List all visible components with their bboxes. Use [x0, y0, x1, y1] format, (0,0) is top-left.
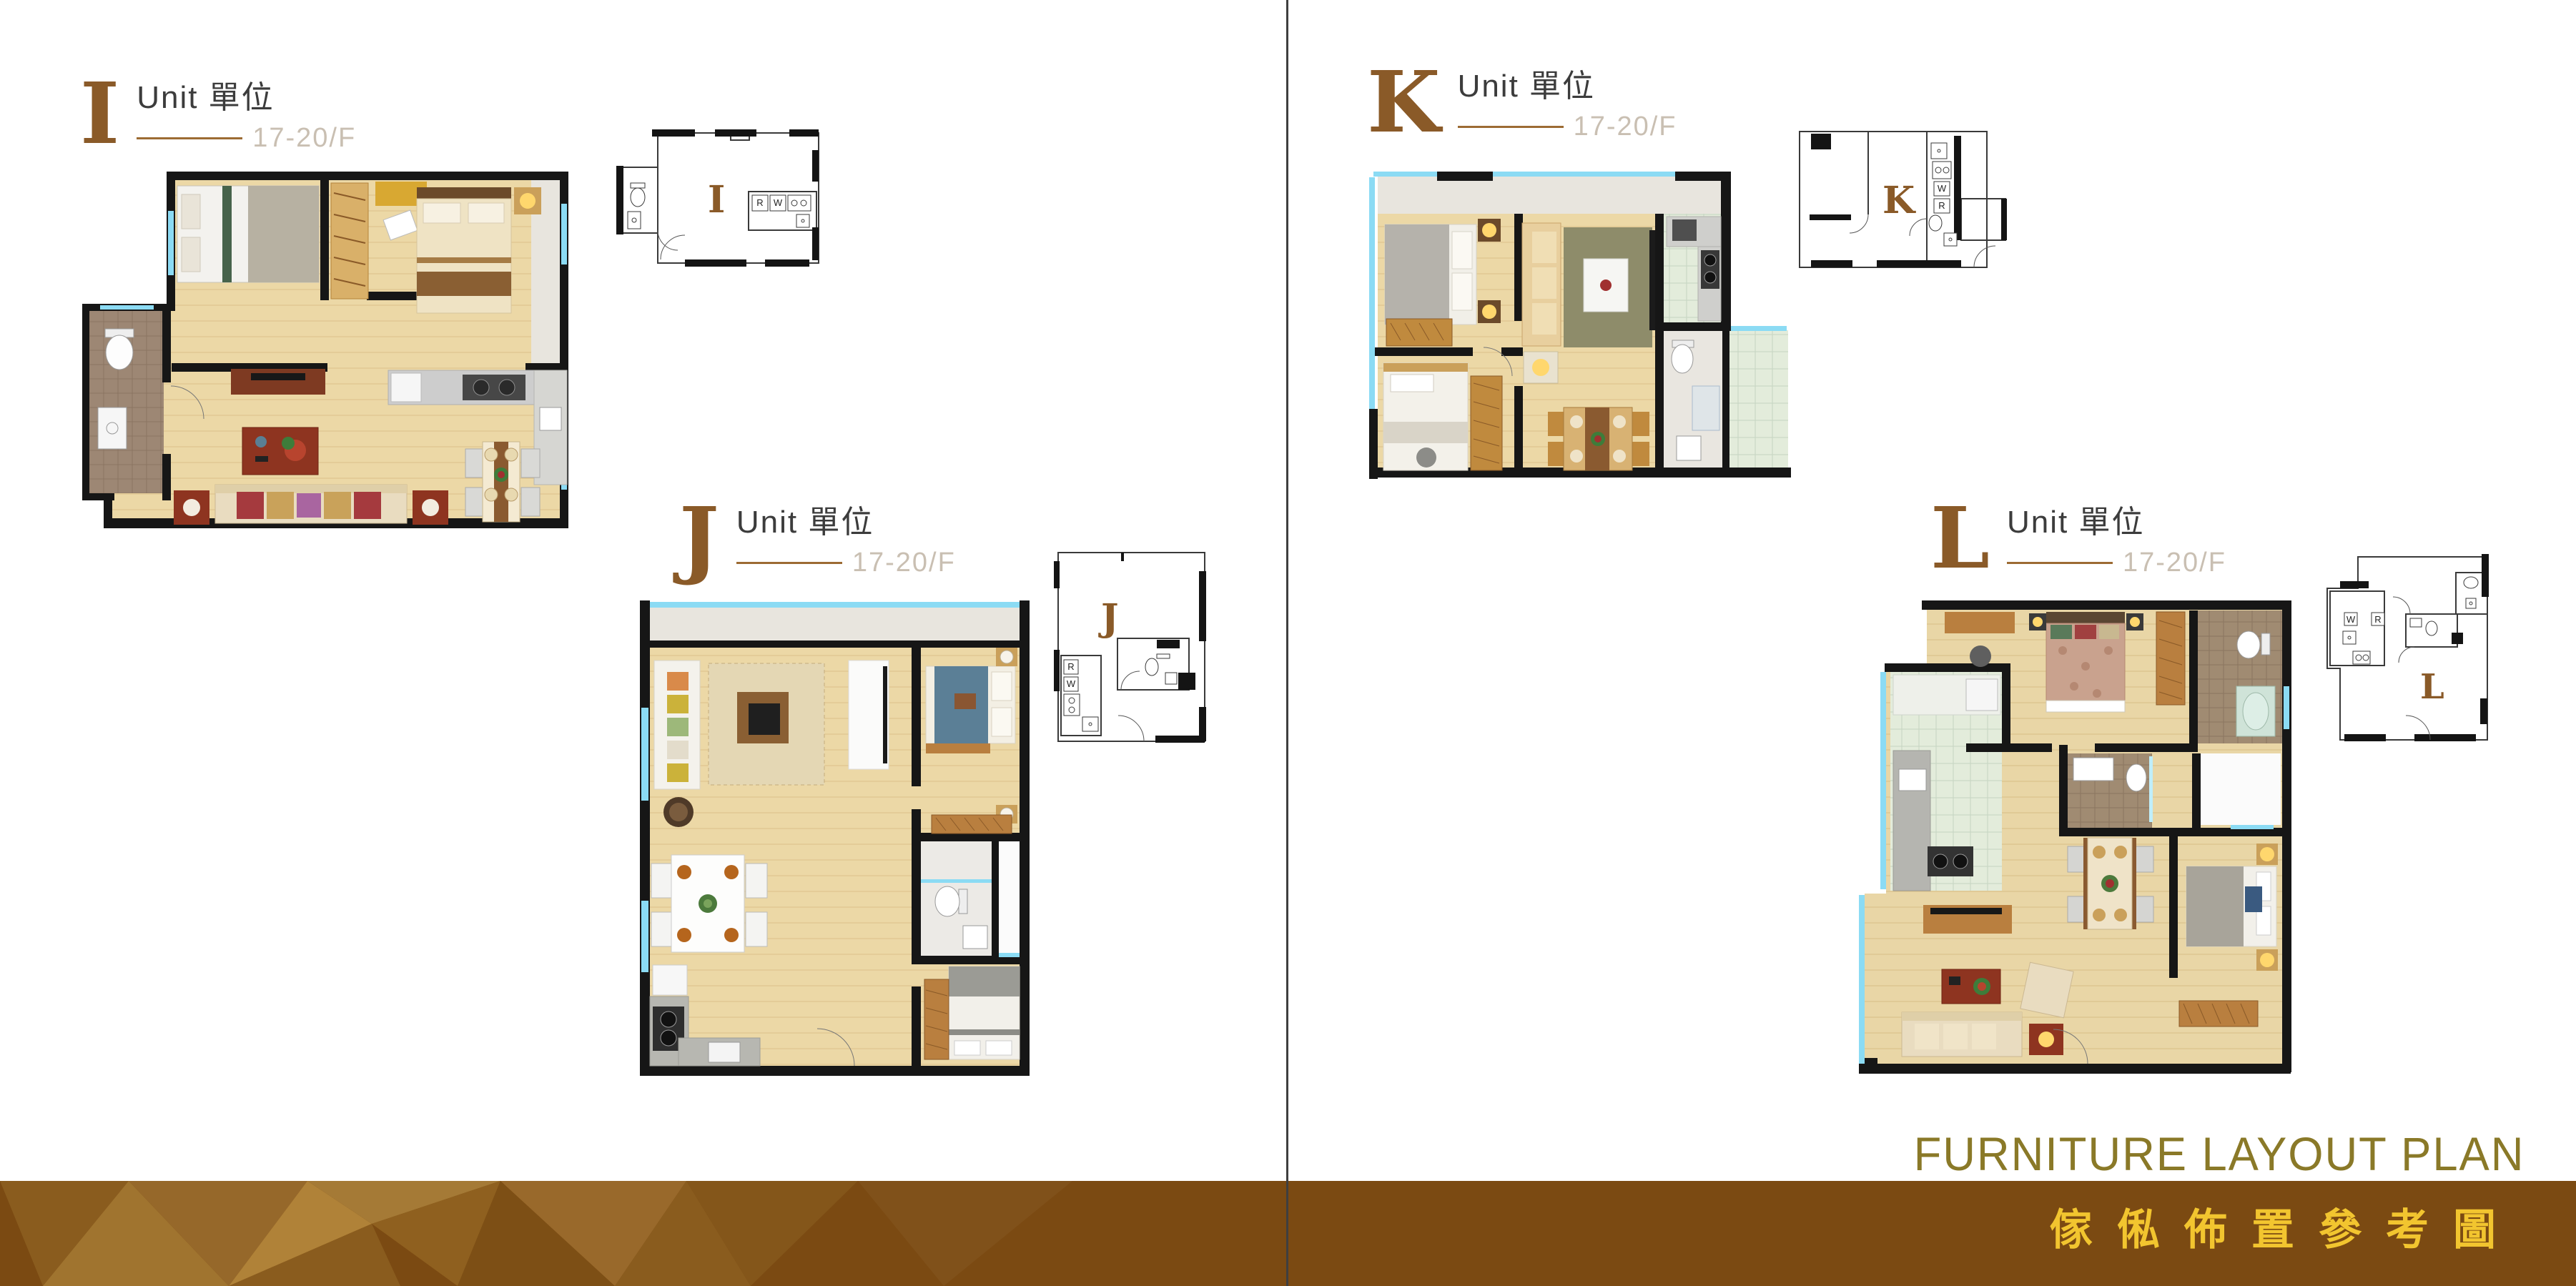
unit-i-schem-fridge-label: R — [756, 197, 763, 208]
unit-j-letter: J — [679, 505, 719, 572]
unit-j-floorplan-rendered — [640, 600, 1030, 1076]
unit-i-coffee-table — [242, 427, 318, 475]
unit-i-schem-washer-label: W — [774, 197, 783, 208]
unit-k-floorplan-schematic: W R K — [1790, 114, 2011, 282]
unit-l-floorplan-schematic: W R L — [2319, 547, 2501, 751]
unit-i-wardrobe — [331, 183, 368, 299]
unit-j-sofa — [654, 661, 700, 789]
unit-j-schem-letter: J — [1098, 596, 1119, 640]
page-title-zh: 傢俬佈置參考圖 — [2050, 1195, 2520, 1257]
unit-k-letter: K — [1367, 69, 1441, 136]
unit-j-schem-fridge-label: R — [1067, 661, 1074, 672]
unit-k-bed-1 — [1385, 224, 1476, 325]
unit-j-toilet — [935, 886, 967, 916]
unit-j-schem-washer-label: W — [1067, 678, 1076, 689]
unit-k-sofa — [1522, 223, 1561, 346]
unit-i-bed-2 — [417, 187, 511, 313]
unit-k-schem-washer-label: W — [1938, 183, 1947, 194]
unit-j-round-side-table — [663, 797, 694, 827]
unit-i-label: Unit 單位 — [137, 81, 356, 114]
unit-k-top-ledge — [1378, 177, 1725, 214]
unit-j-label: Unit 單位 — [736, 506, 956, 539]
unit-i-floorplan-rendered — [82, 172, 572, 533]
unit-i-rule — [137, 137, 242, 139]
unit-k-side-table-lamp — [1524, 352, 1558, 383]
unit-k-wardrobe-2 — [1471, 376, 1502, 470]
unit-j-bed-1 — [926, 666, 1015, 753]
unit-i-bathroom-sink — [98, 407, 127, 449]
unit-l-floor: 17-20/F — [2123, 548, 2226, 578]
unit-i-schem-doors — [658, 230, 685, 259]
unit-j-schem-doors — [1118, 671, 1144, 741]
unit-l-bed-1 — [2046, 612, 2125, 712]
unit-l-bench — [2179, 1001, 2258, 1027]
unit-l-label: Unit 單位 — [2007, 506, 2226, 539]
unit-i-toilet — [105, 329, 134, 370]
unit-l-side-table-lamp — [2029, 1024, 2063, 1055]
page-title-en: FURNITURE LAYOUT PLAN — [1913, 1127, 2525, 1181]
unit-j-bed-2 — [949, 966, 1020, 1059]
unit-j-window-top — [647, 602, 1025, 608]
unit-j-wardrobe — [924, 979, 949, 1059]
unit-j-tv-cabinet — [849, 661, 889, 769]
unit-j-flat-roof — [999, 841, 1020, 956]
unit-j-schem-walls — [1058, 553, 1205, 741]
unit-i-floorplan-schematic: R W I — [616, 123, 831, 273]
unit-i-bed-1 — [177, 186, 319, 282]
unit-l-floorplan-rendered — [1859, 600, 2291, 1079]
unit-l-desk — [1945, 612, 2015, 633]
unit-i-letter: I — [80, 80, 119, 147]
footer-band-polygons — [0, 1181, 1287, 1286]
unit-i-side-table-right — [413, 490, 448, 525]
unit-j-rule — [736, 562, 842, 564]
unit-l-schem-fridge-label: R — [2374, 614, 2381, 625]
unit-k-schem-letter: K — [1882, 179, 1916, 222]
unit-l-tv-console — [1923, 905, 2012, 934]
unit-l-wardrobe-1 — [2156, 612, 2185, 705]
unit-k-wardrobe-1 — [1386, 319, 1452, 346]
unit-j-top-ledge — [650, 608, 1022, 643]
unit-i-sofa — [215, 485, 407, 523]
unit-l-schem-letter: L — [2420, 667, 2444, 707]
unit-j-rug-coffee-table — [709, 663, 824, 785]
unit-k-window-top — [1373, 172, 1728, 177]
unit-i-header: I Unit 單位 17-20/F — [80, 80, 356, 154]
unit-l-schem-washer-label: W — [2346, 614, 2356, 625]
unit-j-header: J Unit 單位 17-20/F — [679, 505, 956, 578]
unit-k-schem-fixtures — [1929, 143, 1957, 246]
unit-k-floor: 17-20/F — [1574, 112, 1677, 142]
unit-i-tv-console — [231, 369, 325, 395]
unit-l-letter: L — [1930, 505, 1990, 572]
unit-l-coffee-table — [1942, 969, 2000, 1004]
unit-l-desk-chair — [1970, 646, 1991, 667]
unit-l-sofa — [1902, 1012, 2022, 1057]
unit-i-schem-letter: I — [708, 178, 725, 222]
unit-k-balcony — [1727, 330, 1788, 470]
unit-j-schem-fixtures — [1064, 654, 1177, 731]
unit-l-header: L Unit 單位 17-20/F — [1930, 505, 2226, 578]
unit-j-floorplan-schematic: R W J — [1050, 541, 1214, 748]
unit-k-schem-fridge-label: R — [1938, 200, 1945, 211]
unit-k-label: Unit 單位 — [1458, 70, 1677, 103]
unit-k-rule — [1458, 126, 1564, 128]
page-divider — [1286, 0, 1288, 1286]
unit-k-rug-coffee-table — [1564, 227, 1652, 347]
unit-j-shower — [963, 926, 987, 949]
unit-k-tv — [1649, 230, 1655, 330]
unit-l-rule — [2007, 562, 2113, 564]
unit-j-floor: 17-20/F — [852, 548, 956, 578]
unit-i-side-table-left — [174, 490, 209, 525]
unit-k-floorplan-rendered — [1369, 172, 1791, 479]
unit-l-bed-2 — [2186, 866, 2276, 946]
unit-k-header: K Unit 單位 17-20/F — [1367, 69, 1677, 142]
unit-i-nightstand-lamp — [514, 187, 541, 214]
unit-l-armchair — [2020, 962, 2073, 1017]
unit-j-dresser — [932, 815, 1012, 834]
unit-l-flat-roof — [2201, 753, 2281, 825]
unit-i-floor: 17-20/F — [252, 123, 356, 154]
unit-k-bed-2 — [1383, 363, 1468, 470]
